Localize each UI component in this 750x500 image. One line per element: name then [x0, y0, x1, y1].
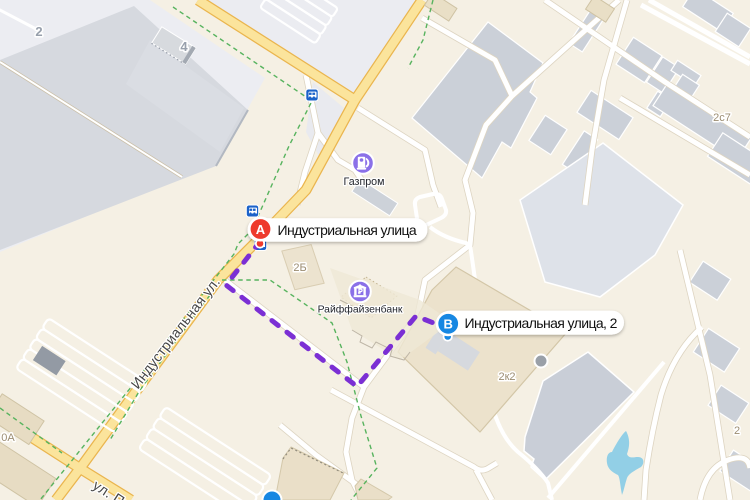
svg-text:0А: 0А	[1, 432, 15, 444]
svg-text:4: 4	[180, 39, 188, 54]
svg-text:2с7: 2с7	[713, 112, 731, 124]
svg-text:Райффайзенбанк: Райффайзенбанк	[318, 304, 403, 316]
svg-text:2к2: 2к2	[498, 371, 515, 383]
svg-text:Газпром: Газпром	[344, 176, 385, 188]
svg-text:В: В	[444, 317, 453, 332]
svg-text:А: А	[256, 222, 266, 237]
svg-text:2Б: 2Б	[293, 262, 306, 274]
svg-text:2: 2	[734, 425, 740, 437]
svg-text:2: 2	[35, 24, 42, 39]
svg-text:Индустриальная улица, 2: Индустриальная улица, 2	[465, 315, 618, 331]
svg-text:Индустриальная улица: Индустриальная улица	[278, 222, 417, 238]
